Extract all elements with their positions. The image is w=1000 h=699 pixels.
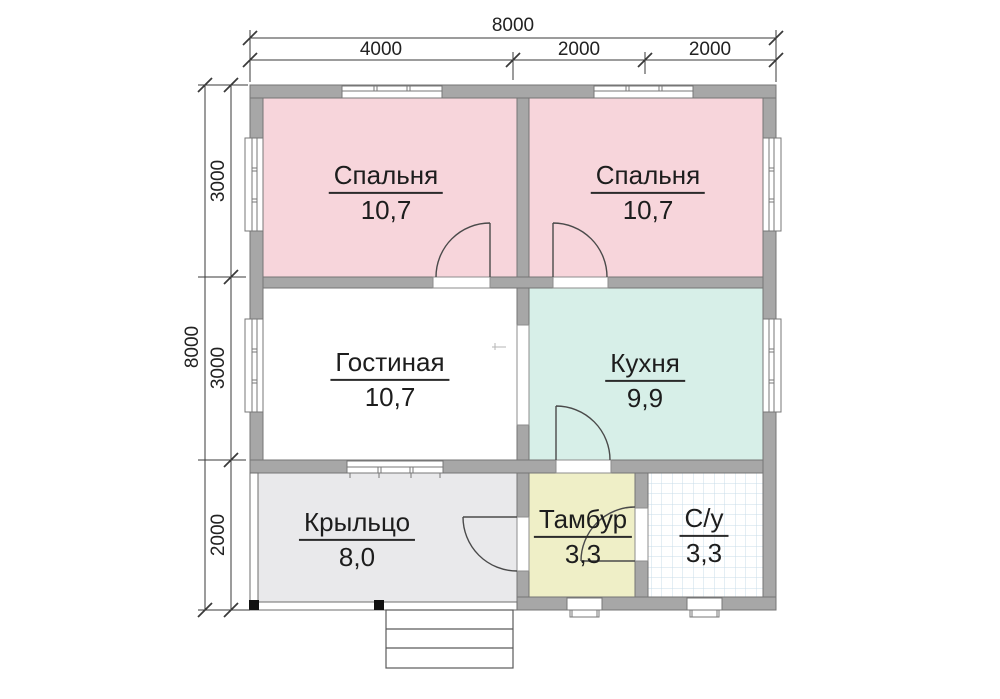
steps-outline bbox=[386, 610, 513, 668]
room-name: Спальня bbox=[329, 161, 443, 194]
room-name: Кухня bbox=[605, 349, 685, 382]
room-area: 10,7 bbox=[329, 196, 443, 225]
window-sill bbox=[245, 138, 252, 231]
window-frame bbox=[594, 86, 693, 98]
porch-edge-left bbox=[250, 473, 258, 610]
window-bedroom-2-right bbox=[763, 138, 781, 231]
wall-vestibule-right-upper bbox=[635, 473, 648, 508]
window-sill bbox=[690, 610, 719, 617]
kitchen-door-opening bbox=[556, 460, 611, 473]
bedroom-1-door-opening bbox=[433, 277, 490, 288]
room-area: 3,3 bbox=[534, 540, 632, 569]
wall-center-stub-bottom bbox=[517, 425, 529, 460]
floor-plan-drawing bbox=[0, 0, 1000, 699]
window-kitchen-right bbox=[763, 319, 781, 412]
bathroom-label: С/у 3,3 bbox=[680, 504, 729, 568]
window-bedroom-1-top bbox=[342, 86, 442, 98]
room-area: 10,7 bbox=[591, 196, 705, 225]
bedroom-1-label: Спальня 10,7 bbox=[329, 161, 443, 225]
wall-bottom bbox=[517, 597, 776, 610]
bedroom-2-label: Спальня 10,7 bbox=[591, 161, 705, 225]
vestibule-label: Тамбур 3,3 bbox=[534, 505, 632, 569]
dim-left-segment-3: 2000 bbox=[208, 514, 230, 556]
room-area: 8,0 bbox=[299, 543, 415, 572]
porch-post-right bbox=[374, 600, 384, 610]
room-name: Крыльцо bbox=[299, 508, 415, 541]
living-room-label: Гостиная 10,7 bbox=[330, 348, 449, 412]
dim-left-segment-2: 3000 bbox=[208, 347, 230, 389]
dim-left-total: 8000 bbox=[182, 326, 204, 368]
room-name: Гостиная bbox=[330, 348, 449, 381]
wall-middle-bottom bbox=[250, 460, 763, 473]
window-bedroom-2-top bbox=[594, 86, 693, 98]
window-bathroom-bottom bbox=[687, 598, 722, 617]
dim-top-segment-1: 4000 bbox=[360, 39, 402, 61]
room-name: Тамбур bbox=[534, 505, 632, 538]
window-vestibule-bottom bbox=[567, 598, 602, 617]
room-name: С/у bbox=[680, 504, 729, 537]
window-sill bbox=[774, 138, 781, 231]
dim-top-total: 8000 bbox=[492, 15, 534, 37]
window-living-left bbox=[245, 319, 263, 412]
kitchen-label: Кухня 9,9 bbox=[605, 349, 685, 413]
wall-center-stub-top bbox=[517, 288, 529, 325]
wall-vestibule-right-lower bbox=[635, 561, 648, 597]
window-frame bbox=[342, 86, 442, 98]
dim-top-segment-2: 2000 bbox=[558, 39, 600, 61]
wall-top bbox=[250, 85, 776, 98]
room-area: 9,9 bbox=[605, 384, 685, 413]
porch-label: Крыльцо 8,0 bbox=[299, 508, 415, 572]
wall-vestibule-left-upper bbox=[517, 473, 529, 517]
window-frame bbox=[687, 598, 722, 610]
window-sill bbox=[245, 319, 252, 412]
window-sill bbox=[774, 319, 781, 412]
porch-post-left bbox=[249, 600, 259, 610]
room-name: Спальня bbox=[591, 161, 705, 194]
wall-bedrooms-bottom bbox=[263, 277, 763, 288]
floor-plan-canvas: Спальня 10,7 Спальня 10,7 Гостиная 10,7 … bbox=[0, 0, 1000, 699]
entry-steps bbox=[386, 610, 513, 668]
wall-vestibule-left-lower bbox=[517, 571, 529, 597]
dim-left-segment-1: 3000 bbox=[208, 160, 230, 202]
bedroom-2-door-opening bbox=[553, 277, 608, 288]
window-frame bbox=[567, 598, 602, 610]
room-area: 3,3 bbox=[680, 539, 729, 568]
porch-door-opening bbox=[517, 517, 529, 571]
room-area: 10,7 bbox=[330, 383, 449, 412]
living-kitchen-passage bbox=[517, 325, 529, 425]
bathroom-door-opening bbox=[635, 508, 648, 561]
dim-top-segment-3: 2000 bbox=[689, 39, 731, 61]
wall-center-upper bbox=[517, 98, 529, 277]
window-bedroom-1-left bbox=[245, 138, 263, 231]
window-sill bbox=[570, 610, 599, 617]
